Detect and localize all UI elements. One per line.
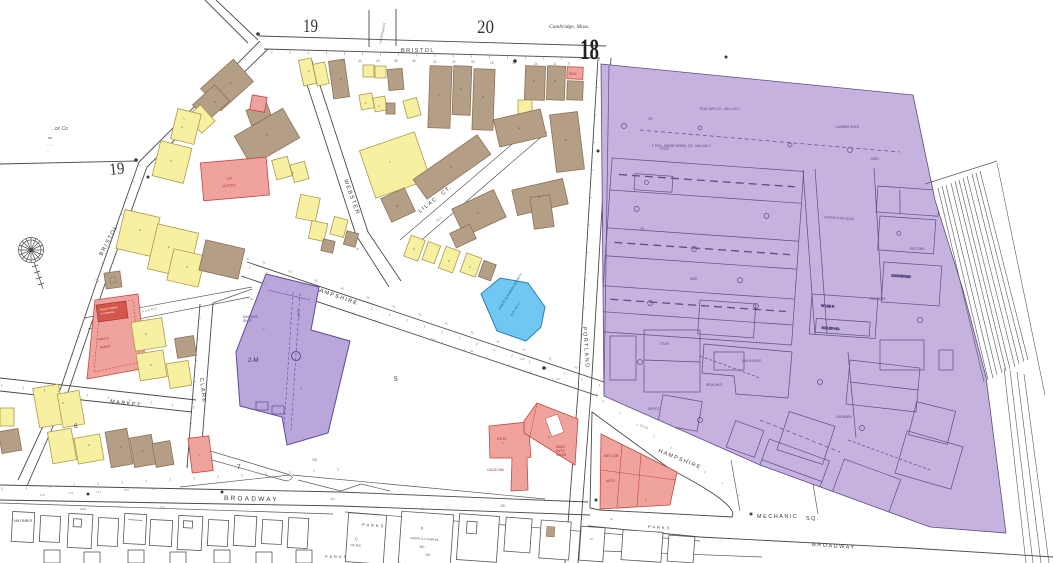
- svg-text:2½: 2½: [640, 227, 645, 231]
- svg-text:28: 28: [490, 61, 494, 65]
- svg-text:Cambridge, Mass.: Cambridge, Mass.: [549, 24, 590, 30]
- svg-text:YARD: YARD: [870, 157, 879, 161]
- svg-text:POLL MFG CO - MILL NO 1: POLL MFG CO - MILL NO 1: [700, 107, 740, 111]
- svg-text:PATTERN: PATTERN: [910, 247, 925, 251]
- svg-text:38: 38: [394, 59, 398, 63]
- svg-text:25: 25: [356, 247, 360, 251]
- svg-text:258: 258: [330, 497, 335, 501]
- svg-text:62: 62: [590, 537, 594, 541]
- svg-text:OFFICE: OFFICE: [648, 407, 660, 411]
- svg-text:6: 6: [74, 423, 78, 430]
- svg-text:F: F: [482, 95, 484, 99]
- svg-text:STOR: STOR: [660, 342, 669, 346]
- svg-text:FOUNDRY: FOUNDRY: [870, 297, 887, 301]
- svg-text:30: 30: [471, 60, 475, 64]
- svg-text:2½: 2½: [648, 117, 653, 121]
- svg-text:MET LINE: MET LINE: [604, 454, 619, 458]
- svg-text:BRISTOL: BRISTOL: [401, 48, 435, 54]
- svg-text:18: 18: [580, 33, 599, 66]
- svg-text:5: 5: [394, 376, 398, 383]
- svg-text:F: F: [438, 93, 440, 97]
- svg-text:19: 19: [108, 159, 125, 179]
- svg-text:2: 2: [645, 498, 647, 502]
- svg-text:A: A: [565, 138, 567, 142]
- svg-text:LUMBER SHED: LUMBER SHED: [836, 125, 860, 129]
- svg-text:BROADWAY: BROADWAY: [224, 495, 279, 503]
- svg-text:9: 9: [568, 62, 570, 66]
- svg-text:SHOP: SHOP: [243, 319, 252, 323]
- svg-text:AUTO: AUTO: [606, 479, 615, 483]
- svg-text:7: 7: [237, 464, 241, 471]
- svg-text:11: 11: [553, 62, 557, 66]
- svg-text:RESI: RESI: [569, 72, 577, 76]
- svg-text:175: 175: [40, 493, 45, 497]
- svg-text:SQ.: SQ.: [806, 516, 820, 522]
- svg-text:33: 33: [470, 349, 474, 353]
- svg-text:32: 32: [452, 60, 456, 64]
- svg-text:F: F: [477, 211, 479, 215]
- svg-text:C.: C.: [355, 536, 359, 541]
- svg-text:SALES: SALES: [556, 453, 566, 457]
- svg-text:2: 2: [300, 387, 302, 391]
- svg-text:250: 250: [500, 504, 506, 508]
- svg-text:208A: 208A: [80, 507, 87, 511]
- svg-text:44: 44: [340, 59, 344, 63]
- svg-text:IRON WKS: IRON WKS: [706, 383, 722, 387]
- svg-text:20: 20: [477, 17, 494, 38]
- svg-text:24: 24: [534, 62, 538, 66]
- svg-text:SIDE: SIDE: [690, 277, 697, 281]
- svg-text:NC-INS: NC-INS: [350, 543, 361, 548]
- svg-text:H: H: [518, 126, 520, 130]
- svg-text:42: 42: [358, 59, 362, 63]
- svg-text:167: 167: [152, 487, 157, 491]
- svg-text:40: 40: [250, 297, 254, 301]
- svg-text:42: 42: [262, 327, 266, 331]
- svg-text:171: 171: [96, 490, 101, 494]
- svg-text:173: 173: [68, 491, 73, 495]
- svg-text:WC.: WC.: [419, 545, 425, 549]
- svg-text:NN PARKS: NN PARKS: [14, 519, 33, 523]
- svg-text:34: 34: [433, 60, 437, 64]
- svg-text:CARBARN: CARBARN: [836, 415, 852, 419]
- svg-text:CALED 356: CALED 356: [487, 468, 504, 472]
- svg-text:208: 208: [420, 507, 425, 511]
- svg-text:F POLL SHEAR WHEEL CO - MILL N: F POLL SHEAR WHEEL CO - MILL NO 2: [652, 144, 711, 148]
- svg-text:MECHANIC: MECHANIC: [757, 514, 798, 520]
- svg-text:PARKS: PARKS: [325, 554, 348, 559]
- svg-text:F: F: [554, 79, 556, 83]
- svg-text:MACH SHOP: MACH SHOP: [742, 359, 761, 363]
- svg-text:50: 50: [610, 517, 614, 521]
- svg-text:230: 230: [312, 458, 318, 462]
- svg-text:169: 169: [124, 488, 129, 492]
- svg-text:180: 180: [425, 553, 431, 557]
- svg-text:137: 137: [556, 377, 561, 381]
- svg-text:2-M: 2-M: [248, 358, 258, 364]
- svg-text:130: 130: [520, 357, 525, 361]
- svg-text:....: ....: [46, 149, 50, 153]
- svg-text:F: F: [460, 87, 462, 91]
- svg-text:..ox Co: ..ox Co: [52, 126, 68, 132]
- svg-text:172: 172: [160, 505, 165, 509]
- svg-text:.... ....: .... ....: [46, 143, 54, 147]
- svg-text:F: F: [533, 79, 535, 83]
- svg-text:19: 19: [303, 16, 318, 37]
- svg-text:36: 36: [412, 59, 416, 63]
- svg-text:40: 40: [376, 59, 380, 63]
